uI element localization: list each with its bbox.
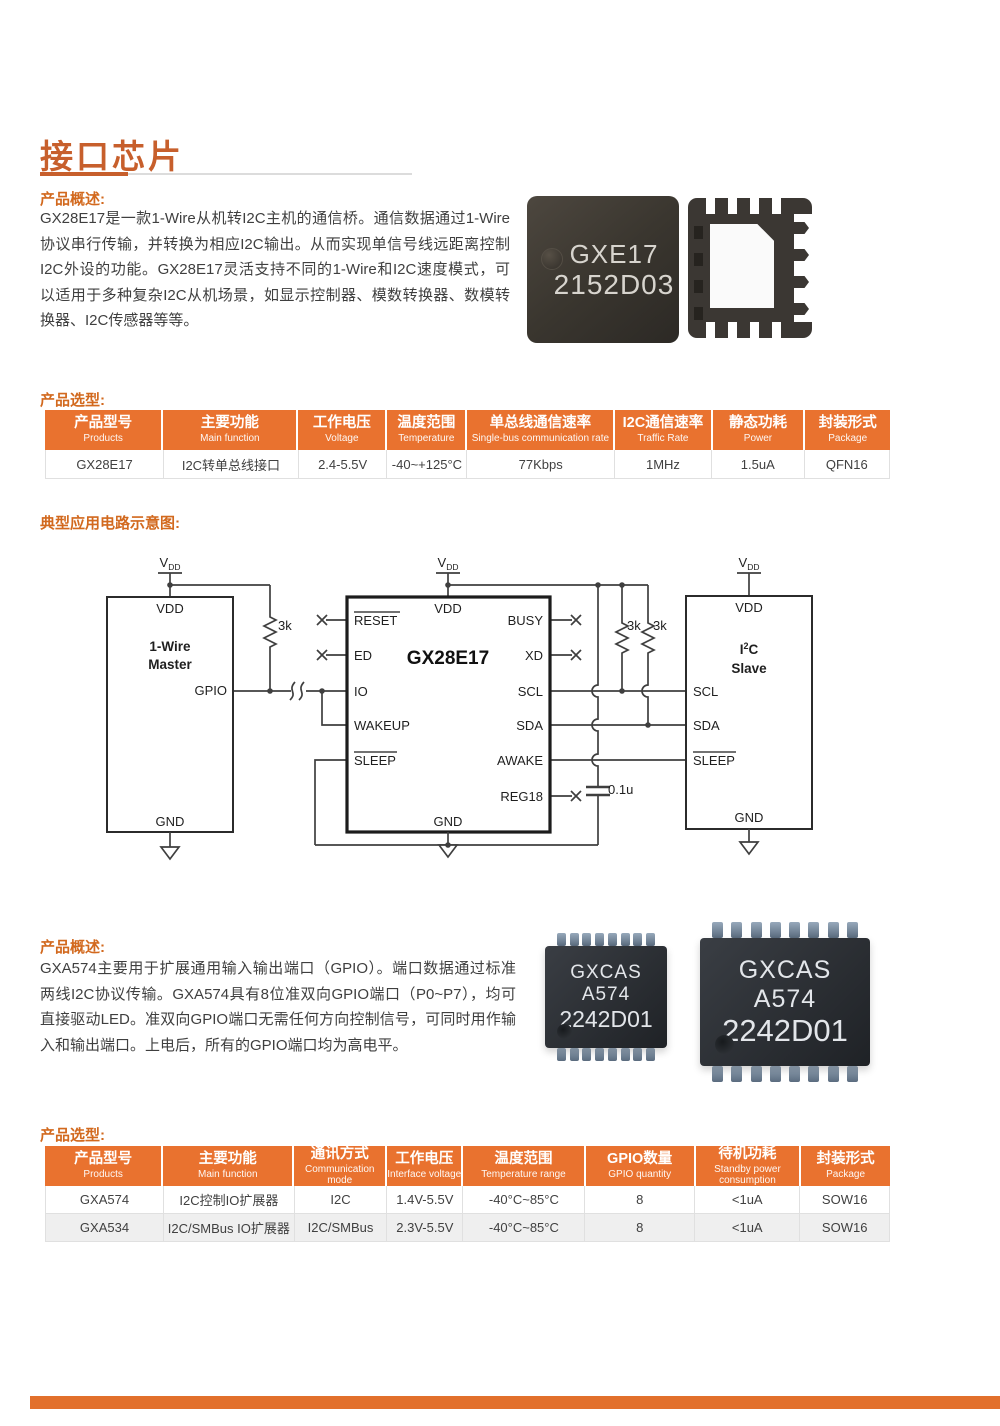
master-box [107, 597, 233, 832]
pin1-marker-dot [715, 1035, 734, 1054]
chip-pin [608, 933, 617, 946]
header-en: Single-bus communication rate [467, 433, 613, 444]
header-zh: 工作电压 [387, 1152, 461, 1167]
header-cell: 温度范围Temperature [387, 410, 467, 450]
header-zh: 主要功能 [163, 416, 296, 431]
chip-pin [608, 1048, 617, 1061]
table-cell: 77Kbps [467, 450, 615, 478]
gnd-symbol [161, 847, 179, 859]
table-cell: GX28E17 [46, 450, 164, 478]
selection-label-2: 产品选型: [40, 1124, 105, 1145]
pin-label-scl: SCL [693, 684, 718, 699]
no-connect-x [571, 791, 581, 801]
header-en: Communication mode [294, 1164, 385, 1186]
header-cell: 工作电压Interface voltage [387, 1146, 463, 1186]
table-body: GXA574 I2C控制IO扩展器 I2C 1.4V-5.5V -40°C~85… [45, 1186, 890, 1242]
chip-marking: GXE17 2152D03 [554, 239, 675, 301]
pin-label-gnd: GND [735, 810, 764, 825]
header-cell: 待机功耗Standby power consumption [696, 1146, 802, 1186]
page-title: 接口芯片 [40, 130, 184, 178]
table-cell: 1MHz [615, 450, 712, 478]
junction-dot [445, 842, 451, 848]
table-cell: 8 [585, 1186, 695, 1213]
vdd-label: VDD [739, 555, 760, 572]
chip-pin [751, 922, 762, 938]
table-cell: 2.4-5.5V [299, 450, 388, 478]
master-title-2: Master [148, 657, 192, 672]
resistor-3k-left [264, 585, 276, 691]
slave-title-2: Slave [731, 661, 767, 676]
header-en: GPIO quantity [586, 1169, 694, 1180]
junction-dot [267, 688, 273, 694]
master-title-1: 1-Wire [149, 639, 191, 654]
pin-label-io: IO [354, 684, 368, 699]
pin-label-awake: AWAKE [497, 753, 543, 768]
no-connect-x [571, 615, 581, 625]
header-zh: 主要功能 [163, 1152, 292, 1167]
chip-pin [731, 1066, 742, 1082]
chip-marking-line2: A574 [754, 985, 816, 1014]
capacitor-value-label: 0.1u [608, 782, 633, 797]
chip-pin [789, 1066, 800, 1082]
header-en: Products [45, 1169, 161, 1180]
title-underline-rule [128, 173, 412, 175]
chip-pin [770, 1066, 781, 1082]
chip-pin [582, 1048, 591, 1061]
table-cell: 1.4V-5.5V [387, 1186, 463, 1213]
wire [592, 585, 598, 787]
chip-pin [570, 1048, 579, 1061]
header-zh: 静态功耗 [713, 416, 804, 431]
pin-label-reset: RESET [354, 613, 397, 628]
chip-pin [595, 1048, 604, 1061]
table-body: GX28E17 I2C转单总线接口 2.4-5.5V -40~+125°C 77… [45, 450, 890, 479]
header-zh: 温度范围 [387, 416, 465, 431]
junction-dot [167, 582, 173, 588]
junction-dot [319, 688, 325, 694]
header-en: Voltage [298, 433, 385, 444]
header-en: Standby power consumption [696, 1164, 800, 1186]
header-cell: 封装形式Package [801, 1146, 890, 1186]
chip-pin [621, 933, 630, 946]
header-en: Temperature [387, 433, 465, 444]
wire-wakeup [322, 691, 347, 725]
pin-label-vdd: VDD [434, 601, 461, 616]
header-cell: 封装形式Package [805, 410, 890, 450]
vdd-label: VDD [160, 555, 181, 572]
table-cell: SOW16 [800, 1186, 889, 1213]
header-cell: 通讯方式Communication mode [294, 1146, 387, 1186]
table-cell: SOW16 [800, 1214, 889, 1241]
qfn-pad-slot [706, 322, 715, 339]
header-cell: 主要功能Main function [163, 1146, 294, 1186]
header-en: Interface voltage [387, 1169, 461, 1180]
qfn-side-pad [694, 253, 703, 266]
table-cell: I2C/SMBus [295, 1214, 388, 1241]
chip-pin [808, 1066, 819, 1082]
capacitor-0p1u [586, 787, 610, 795]
chip-photo-soic-large: GXCAS A574 2242D01 [700, 922, 870, 1082]
product-table-2: 产品型号Products 主要功能Main function 通讯方式Commu… [45, 1146, 890, 1242]
junction-dot [445, 582, 451, 588]
resistor-3k-scl [616, 585, 628, 691]
circuit-label: 典型应用电路示意图: [40, 512, 180, 533]
header-cell: I2C通信速率Traffic Rate [615, 410, 712, 450]
header-en: Products [45, 433, 161, 444]
table-cell: GXA534 [46, 1214, 164, 1241]
soic-body: GXCAS A574 2242D01 [700, 938, 870, 1066]
resistor-value-label: 3k [627, 618, 641, 633]
wire-sleep-gnd [315, 760, 347, 845]
chip-marking-line2: 2152D03 [554, 269, 675, 301]
pin-label-scl: SCL [518, 684, 543, 699]
header-en: Package [801, 1169, 890, 1180]
qfn-pad-slot [706, 197, 715, 214]
gnd-symbol [740, 842, 758, 854]
junction-dot [619, 582, 625, 588]
wire [326, 620, 347, 655]
qfn-pad-slot [750, 197, 759, 214]
header-zh: GPIO数量 [586, 1152, 694, 1167]
table-cell: I2C [295, 1186, 388, 1213]
pin-label-gpio: GPIO [194, 683, 227, 698]
resistor-value-label: 3k [278, 618, 292, 633]
header-zh: 待机功耗 [696, 1147, 800, 1162]
soic-pins-bottom [700, 1066, 870, 1082]
no-connect-x [571, 650, 581, 660]
qfn-side-pad [694, 307, 703, 320]
pin-label-sleep: SLEEP [354, 753, 396, 768]
chip-photo-soic-small: GXCAS A574 2242D01 [545, 933, 667, 1061]
resistor-value-label: 3k [653, 618, 667, 633]
soic-pins-bottom [545, 1048, 667, 1061]
chip-pin [633, 1048, 642, 1061]
slave-title-1: I2C [740, 641, 759, 657]
circuit-diagram: VDD VDD VDD 3k 3k 3k 0.1u VDD 1-Wire Mas… [45, 545, 955, 875]
chip-marking-line1: GXCAS [570, 962, 642, 984]
header-zh: 通讯方式 [294, 1147, 385, 1162]
pin-label-vdd: VDD [735, 600, 762, 615]
pin-label-xd: XD [525, 648, 543, 663]
chip-pin [646, 933, 655, 946]
overview-text-1: GX28E17是一款1-Wire从机转I2C主机的通信桥。通信数据通过1-Wir… [40, 206, 510, 334]
chip-photo-qfn-bottom [688, 198, 812, 338]
header-cell: 单总线通信速率Single-bus communication rate [467, 410, 615, 450]
header-en: Main function [163, 433, 296, 444]
pin-label-sda: SDA [693, 718, 720, 733]
qfn-pad-slot [750, 322, 759, 339]
chip-pin [751, 1066, 762, 1082]
junction-dot [619, 688, 625, 694]
chip-pin [808, 922, 819, 938]
product-table-1: 产品型号Products 主要功能Main function 工作电压Volta… [45, 410, 890, 479]
qfn-pad-slot [772, 322, 781, 339]
table-cell: I2C/SMBus IO扩展器 [164, 1214, 295, 1241]
table-row: GXA534 I2C/SMBus IO扩展器 I2C/SMBus 2.3V-5.… [46, 1213, 889, 1241]
header-zh: 封装形式 [805, 416, 890, 431]
qfn-center-pad [710, 224, 774, 308]
chip-photo-qfn-top: GXE17 2152D03 [527, 196, 679, 343]
header-zh: 单总线通信速率 [467, 416, 613, 431]
header-cell: 产品型号Products [45, 410, 163, 450]
pin1-marker-dot [541, 248, 563, 270]
table-cell: <1uA [695, 1214, 800, 1241]
overview-text-2: GXA574主要用于扩展通用输入输出端口（GPIO）。端口数据通过标准两线I2C… [40, 956, 516, 1058]
chip-pin [828, 922, 839, 938]
chip-pin [712, 1066, 723, 1082]
chip-pin [570, 933, 579, 946]
chip-pin [731, 922, 742, 938]
header-cell: 静态功耗Power [713, 410, 806, 450]
table-cell: GXA574 [46, 1186, 164, 1213]
header-en: Temperature range [463, 1169, 584, 1180]
chip-marking-line2: A574 [582, 984, 630, 1006]
chip-marking-line1: GXCAS [739, 956, 832, 985]
pin-label-sda: SDA [516, 718, 543, 733]
chip-marking-line1: GXE17 [554, 239, 675, 269]
table-cell: I2C控制IO扩展器 [164, 1186, 295, 1213]
table-cell: I2C转单总线接口 [164, 450, 299, 478]
chip-pin [828, 1066, 839, 1082]
chip-pin [847, 922, 858, 938]
header-en: Main function [163, 1169, 292, 1180]
overview-label-2: 产品概述: [40, 936, 105, 957]
wire [550, 620, 572, 796]
footer-accent-bar [30, 1396, 1000, 1409]
table-row: GXA574 I2C控制IO扩展器 I2C 1.4V-5.5V -40°C~85… [46, 1186, 889, 1213]
header-zh: I2C通信速率 [615, 416, 710, 431]
table-cell: 2.3V-5.5V [387, 1214, 463, 1241]
pin-label-gnd: GND [434, 814, 463, 829]
table-cell: 8 [585, 1214, 695, 1241]
junction-dot [645, 722, 651, 728]
header-zh: 产品型号 [45, 1152, 161, 1167]
title-underline-accent [40, 172, 128, 176]
pin1-marker-dot [557, 1024, 572, 1039]
pin-label-ed: ED [354, 648, 372, 663]
header-zh: 温度范围 [463, 1152, 584, 1167]
header-en: Power [713, 433, 804, 444]
pin-label-gnd: GND [156, 814, 185, 829]
chip-pin [789, 922, 800, 938]
header-cell: 工作电压Voltage [298, 410, 387, 450]
table-header-row: 产品型号Products 主要功能Main function 通讯方式Commu… [45, 1146, 890, 1186]
chip-marking-line3: 2242D01 [722, 1014, 848, 1048]
soic-pins-top [545, 933, 667, 946]
chip-pin [633, 933, 642, 946]
table-cell: <1uA [695, 1186, 800, 1213]
resistor-3k-sda [642, 585, 654, 725]
qfn-pad-slot [728, 197, 737, 214]
chip-pin [847, 1066, 858, 1082]
table-cell: -40~+125°C [387, 450, 467, 478]
header-cell: 产品型号Products [45, 1146, 163, 1186]
pin-label-wakeup: WAKEUP [354, 718, 410, 733]
table-cell: -40°C~85°C [463, 1186, 585, 1213]
qfn-side-pad [694, 280, 703, 293]
pin-label-vdd: VDD [156, 601, 183, 616]
header-zh: 工作电压 [298, 416, 385, 431]
chip-pin [557, 1048, 566, 1061]
chip-marking-line3: 2242D01 [559, 1006, 652, 1032]
slave-box [686, 596, 812, 829]
header-en: Package [805, 433, 890, 444]
no-connect-x [317, 650, 327, 660]
chip-pin [582, 933, 591, 946]
soic-body: GXCAS A574 2242D01 [545, 946, 667, 1048]
pin-label-reg18: REG18 [500, 789, 543, 804]
chip-title: GX28E17 [407, 648, 489, 669]
chip-pin [557, 933, 566, 946]
header-en: Traffic Rate [615, 433, 710, 444]
header-cell: 主要功能Main function [163, 410, 298, 450]
chip-pin [621, 1048, 630, 1061]
pin-label-sleep: SLEEP [693, 753, 735, 768]
qfn-side-pad [694, 226, 703, 239]
no-connect-x [317, 615, 327, 625]
pin-label-busy: BUSY [508, 613, 544, 628]
qfn-pad-slot [728, 322, 737, 339]
table-header-row: 产品型号Products 主要功能Main function 工作电压Volta… [45, 410, 890, 450]
soic-pins-top [700, 922, 870, 938]
vdd-symbol [737, 573, 761, 596]
chip-pin [646, 1048, 655, 1061]
header-zh: 封装形式 [801, 1152, 890, 1167]
vdd-label: VDD [438, 555, 459, 572]
chip-pin [770, 922, 781, 938]
selection-label-1: 产品选型: [40, 389, 105, 410]
junction-dot [595, 582, 601, 588]
header-cell: 温度范围Temperature range [463, 1146, 586, 1186]
chip-pin [595, 933, 604, 946]
header-cell: GPIO数量GPIO quantity [586, 1146, 696, 1186]
chip-pin [712, 922, 723, 938]
table-row: GX28E17 I2C转单总线接口 2.4-5.5V -40~+125°C 77… [46, 450, 889, 478]
datasheet-page: 接口芯片 产品概述: GX28E17是一款1-Wire从机转I2C主机的通信桥。… [0, 0, 1000, 1426]
table-cell: 1.5uA [712, 450, 805, 478]
header-zh: 产品型号 [45, 416, 161, 431]
table-cell: QFN16 [805, 450, 889, 478]
table-cell: -40°C~85°C [463, 1214, 585, 1241]
qfn-pad-slot [772, 197, 781, 214]
